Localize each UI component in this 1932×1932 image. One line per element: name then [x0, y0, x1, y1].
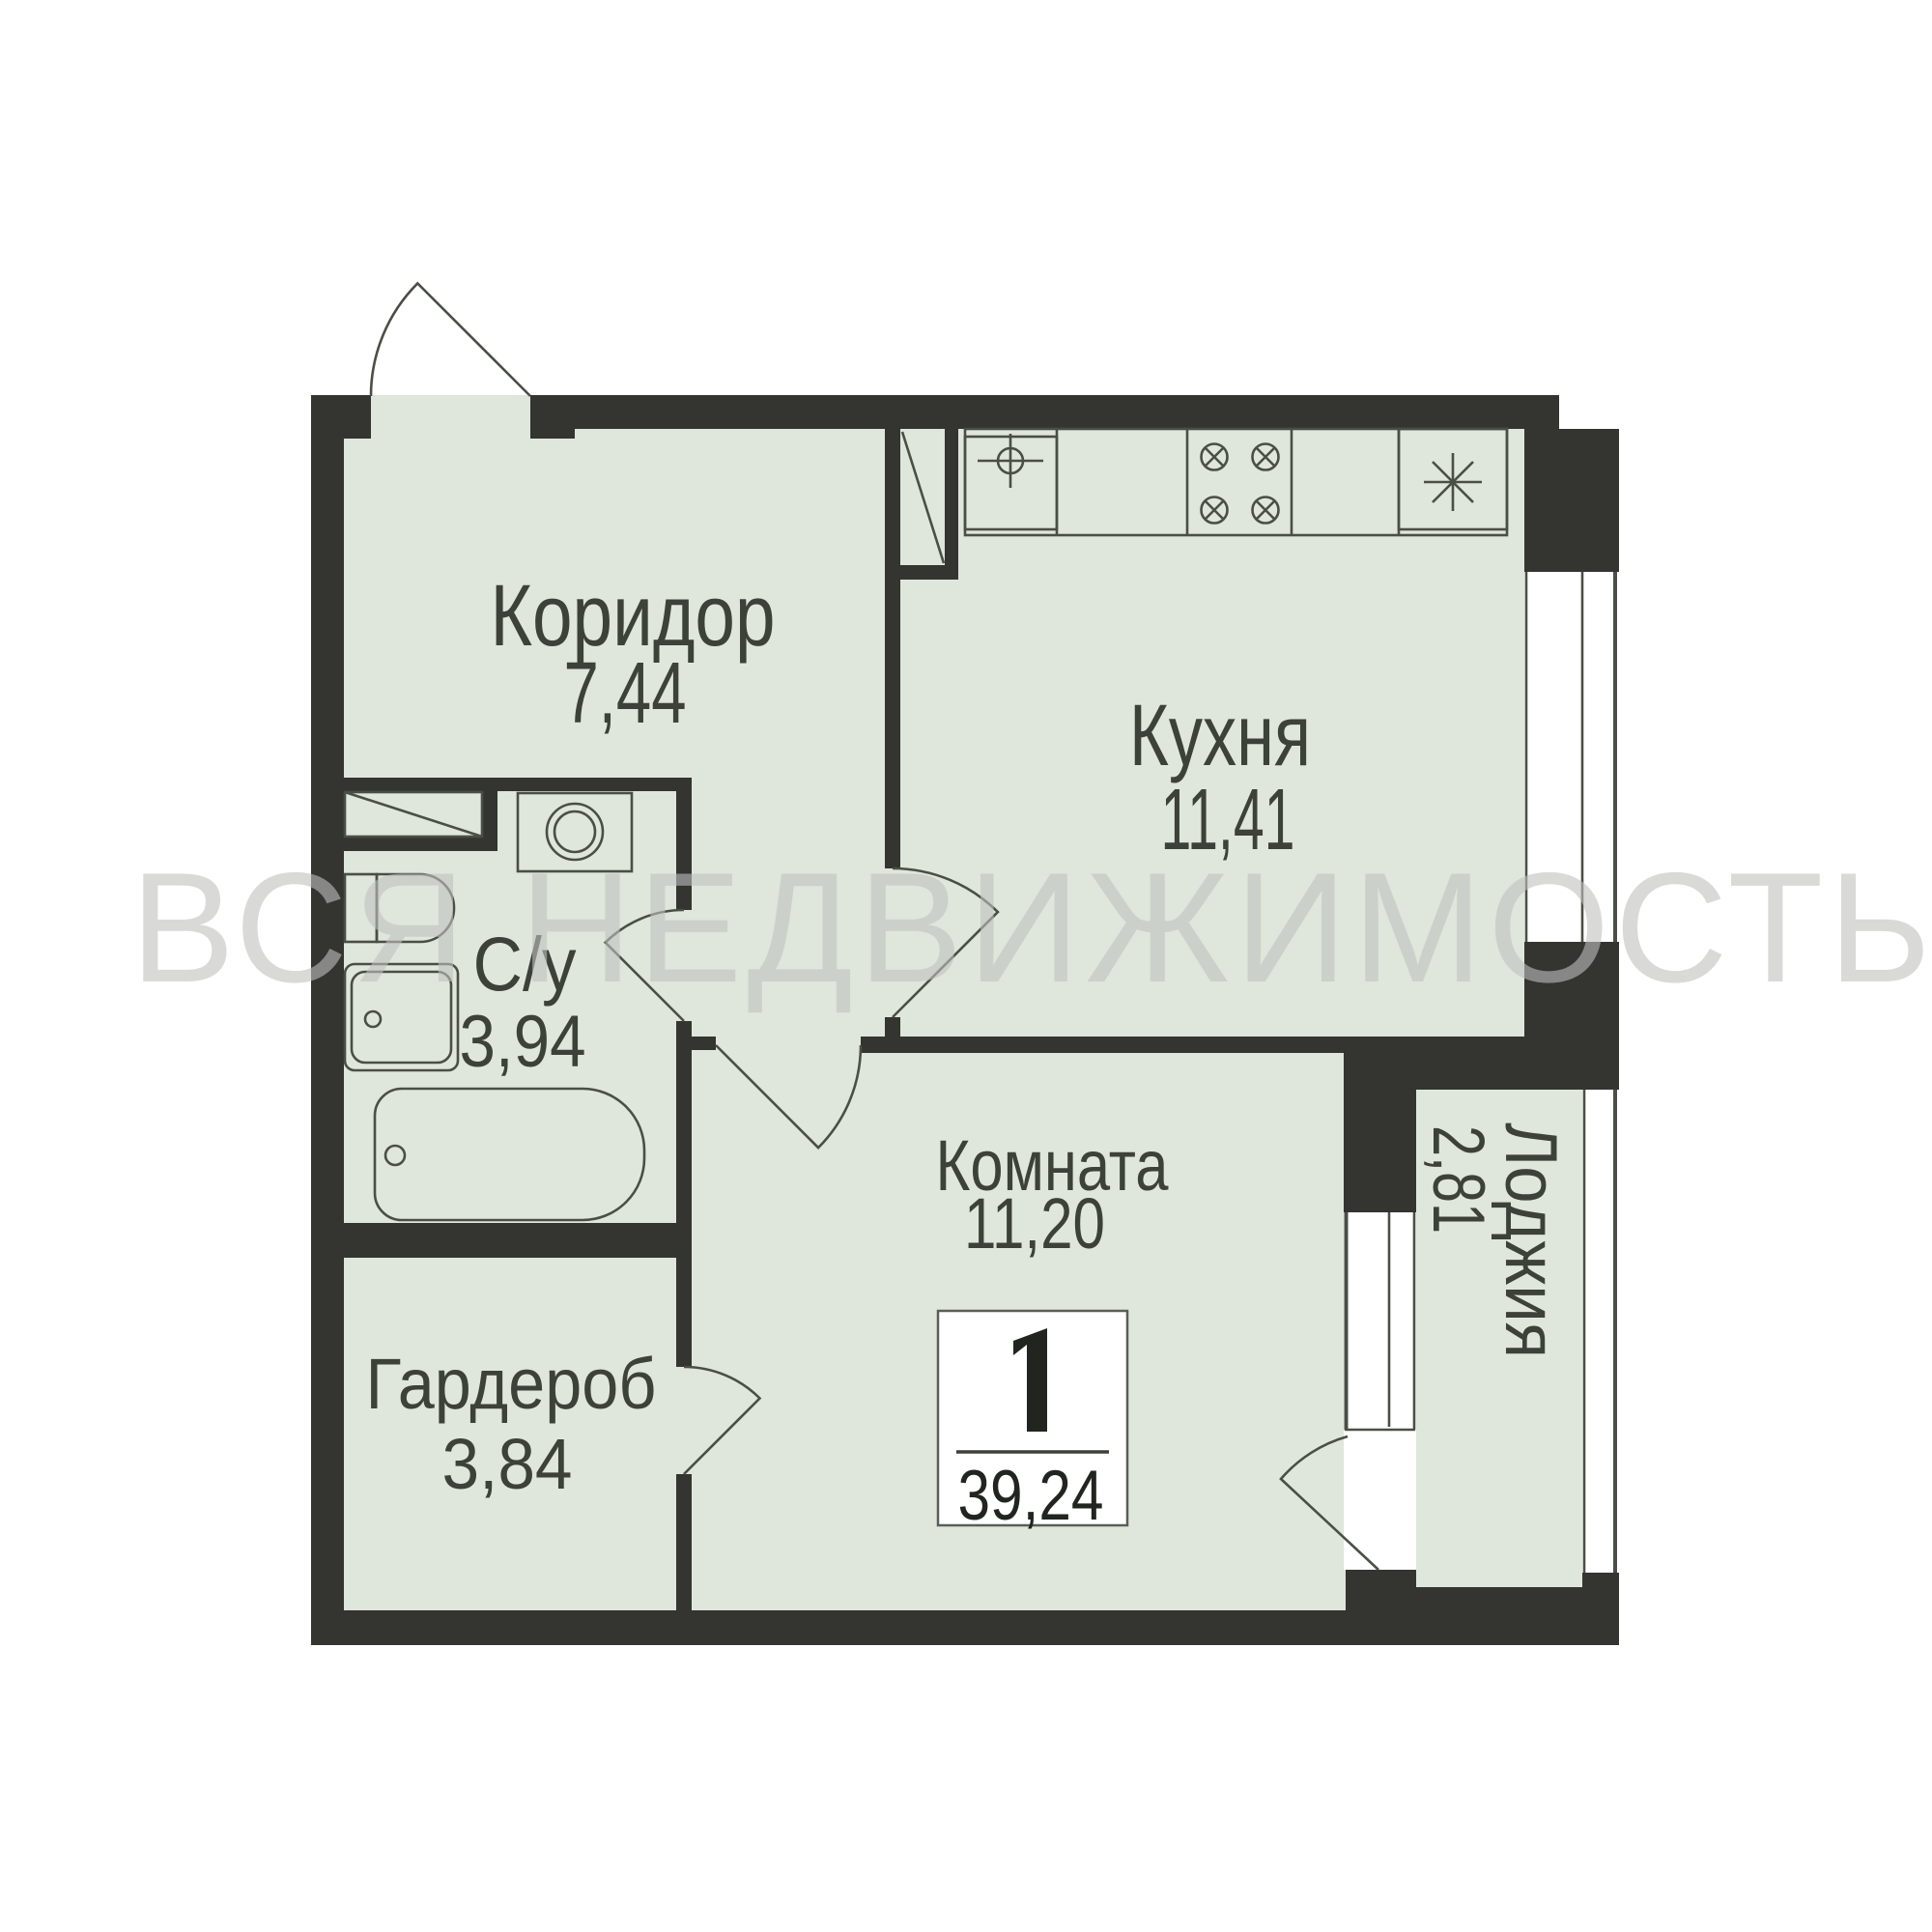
svg-text:Лоджия: Лоджия	[1490, 1122, 1572, 1358]
svg-text:Кухня: Кухня	[1129, 688, 1311, 784]
svg-text:3,84: 3,84	[442, 1424, 573, 1504]
svg-text:11,20: 11,20	[964, 1183, 1105, 1264]
svg-text:Гардероб: Гардероб	[366, 1344, 657, 1424]
svg-text:7,44: 7,44	[564, 645, 687, 742]
svg-text:ВСЯ НЕДВИЖИМОСТЬ: ВСЯ НЕДВИЖИМОСТЬ	[130, 840, 1931, 1015]
svg-text:2,81: 2,81	[1417, 1125, 1499, 1234]
svg-text:39,24: 39,24	[958, 1457, 1104, 1535]
